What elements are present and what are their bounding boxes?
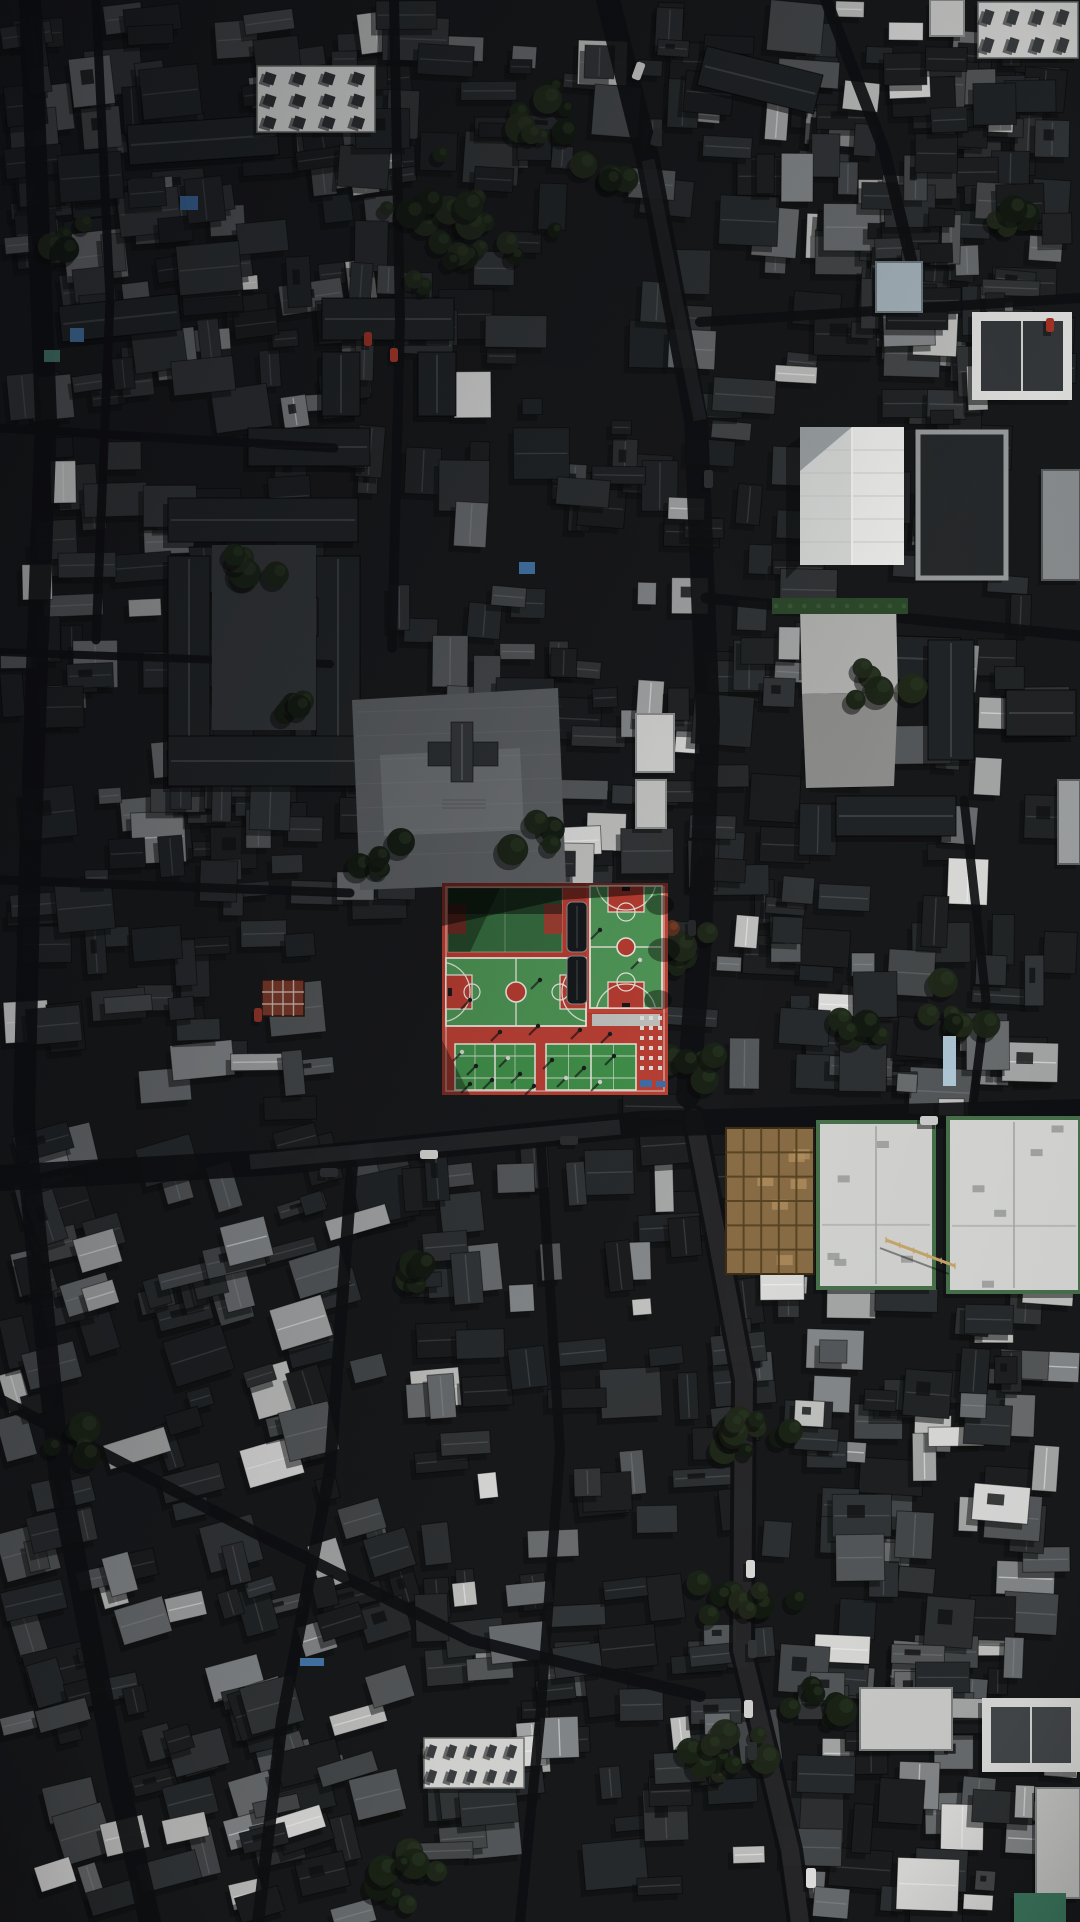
lighting-overlay: [0, 0, 1080, 1922]
aerial-photo: [0, 0, 1080, 1922]
aerial-photo-svg: [0, 0, 1080, 1922]
